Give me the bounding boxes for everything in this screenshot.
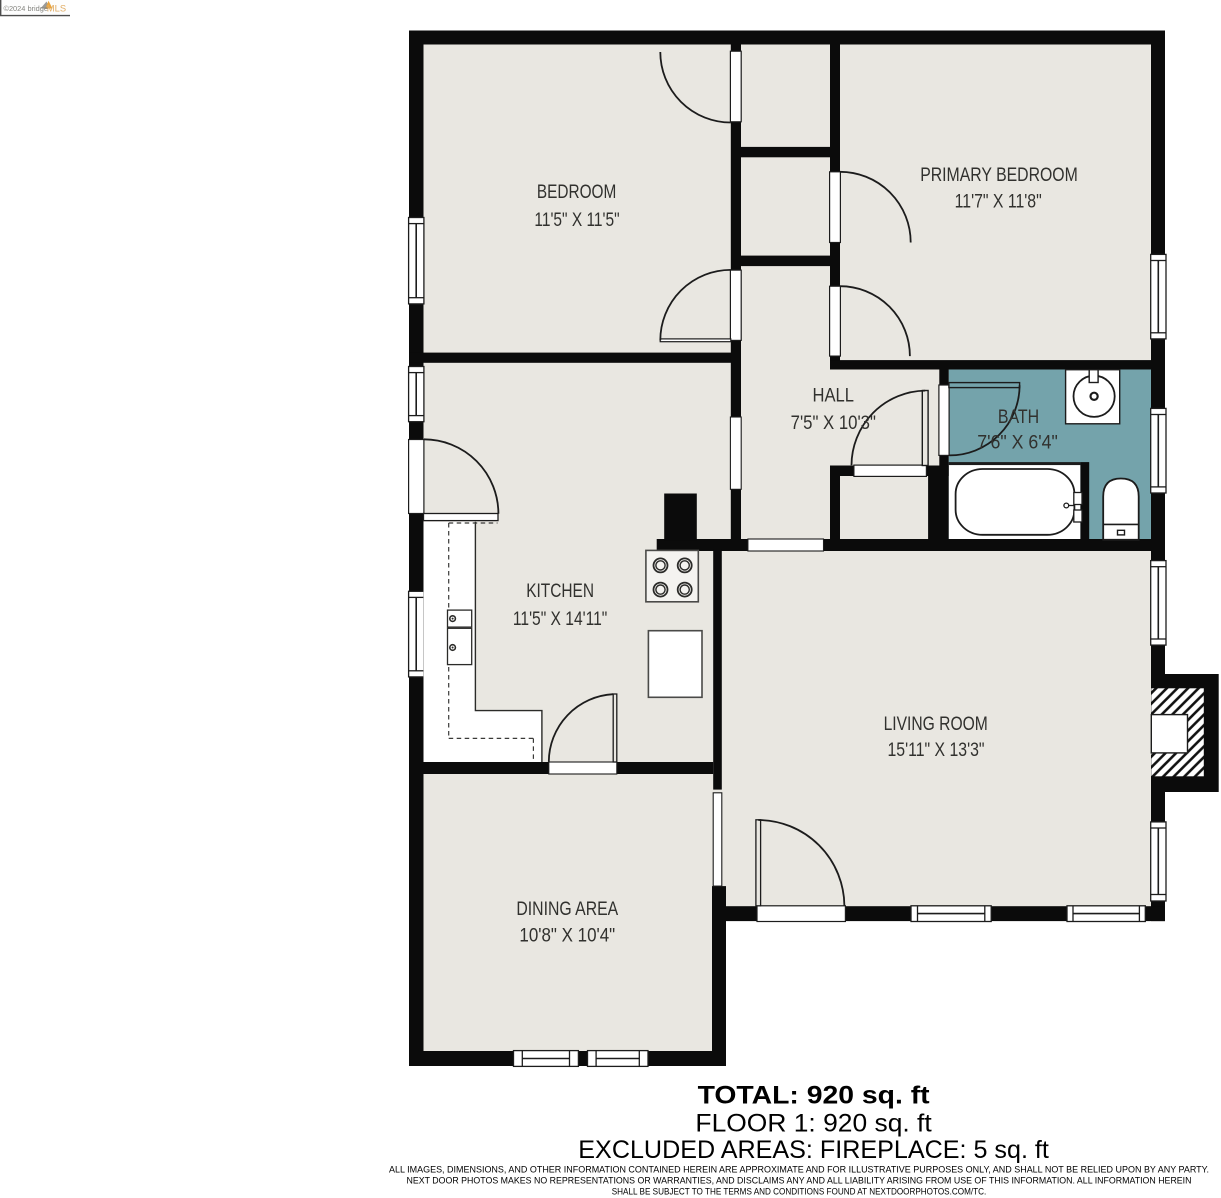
svg-text:EXCLUDED AREAS: FIREPLACE: 5 s: EXCLUDED AREAS: FIREPLACE: 5 sq. ft bbox=[578, 1136, 1049, 1164]
svg-text:MLS: MLS bbox=[47, 3, 66, 14]
svg-text:10'8" X 10'4": 10'8" X 10'4" bbox=[519, 925, 615, 947]
svg-text:SHALL BE SUBJECT TO THE TERMS: SHALL BE SUBJECT TO THE TERMS AND CONDIT… bbox=[612, 1187, 987, 1198]
svg-text:FLOOR 1: 920 sq. ft: FLOOR 1: 920 sq. ft bbox=[695, 1110, 931, 1138]
svg-text:BATH: BATH bbox=[998, 406, 1039, 428]
svg-text:TOTAL: 920 sq. ft: TOTAL: 920 sq. ft bbox=[698, 1082, 931, 1110]
svg-text:7'6" X 6'4": 7'6" X 6'4" bbox=[977, 432, 1058, 454]
svg-text:DINING AREA: DINING AREA bbox=[516, 898, 618, 920]
svg-text:PRIMARY BEDROOM: PRIMARY BEDROOM bbox=[920, 164, 1078, 186]
svg-text:©2024 bridge: ©2024 bridge bbox=[4, 4, 49, 13]
svg-text:HALL: HALL bbox=[813, 385, 855, 407]
svg-text:BEDROOM: BEDROOM bbox=[537, 181, 616, 203]
svg-text:11'7" X 11'8": 11'7" X 11'8" bbox=[955, 191, 1042, 213]
svg-text:11'5" X 11'5": 11'5" X 11'5" bbox=[534, 209, 619, 231]
svg-text:ALL IMAGES, DIMENSIONS, AND OT: ALL IMAGES, DIMENSIONS, AND OTHER INFORM… bbox=[389, 1164, 1209, 1175]
svg-text:7'5" X 10'3": 7'5" X 10'3" bbox=[791, 412, 876, 434]
svg-text:15'11" X 13'3": 15'11" X 13'3" bbox=[888, 739, 985, 761]
svg-text:11'5" X 14'11": 11'5" X 14'11" bbox=[513, 608, 607, 630]
svg-text:LIVING ROOM: LIVING ROOM bbox=[884, 713, 988, 735]
svg-text:NEXT DOOR PHOTOS MAKES NO REPR: NEXT DOOR PHOTOS MAKES NO REPRESENTATION… bbox=[407, 1175, 1192, 1186]
svg-text:KITCHEN: KITCHEN bbox=[526, 580, 594, 602]
